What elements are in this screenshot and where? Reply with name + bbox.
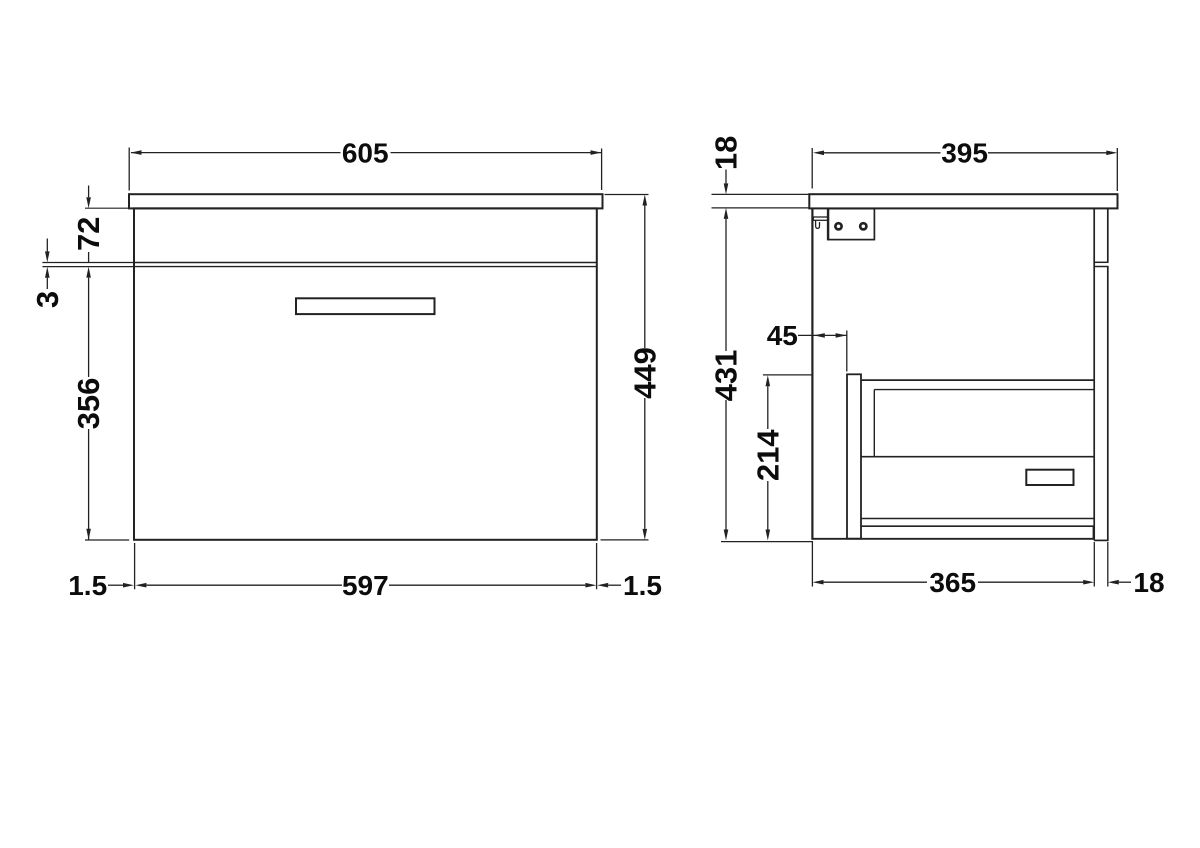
svg-text:214: 214: [750, 429, 785, 481]
svg-text:356: 356: [71, 378, 106, 430]
svg-text:449: 449: [627, 347, 662, 399]
svg-text:45: 45: [767, 320, 798, 351]
svg-text:72: 72: [71, 217, 106, 251]
svg-text:431: 431: [708, 350, 743, 402]
svg-text:3: 3: [30, 291, 65, 308]
svg-text:1.5: 1.5: [68, 570, 107, 601]
svg-text:1.5: 1.5: [623, 570, 662, 601]
svg-text:597: 597: [342, 570, 389, 601]
svg-text:18: 18: [708, 136, 743, 170]
svg-text:605: 605: [342, 137, 389, 168]
svg-text:395: 395: [941, 138, 988, 169]
svg-text:365: 365: [929, 567, 976, 598]
svg-text:18: 18: [1133, 567, 1164, 598]
